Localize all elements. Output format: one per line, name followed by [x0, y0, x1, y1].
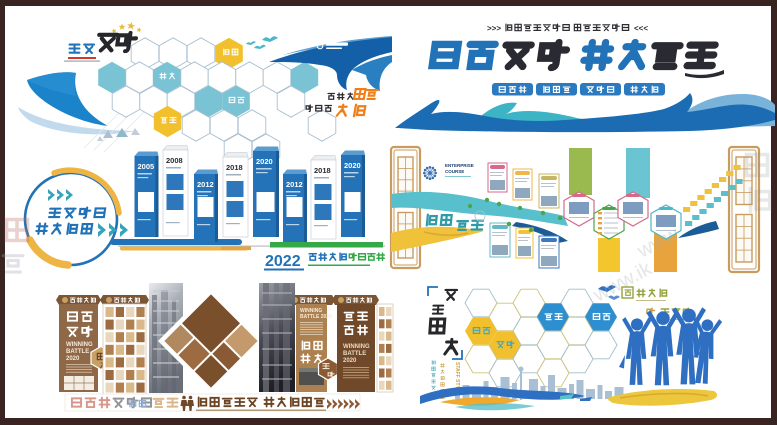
svg-text:BATTLE: BATTLE — [343, 351, 366, 357]
svg-text:WINNING: WINNING — [343, 344, 370, 350]
svg-text:2022: 2022 — [265, 253, 301, 270]
svg-text:>>>: >>> — [487, 24, 501, 33]
svg-text:2020: 2020 — [344, 161, 361, 170]
svg-text:2012: 2012 — [286, 180, 303, 189]
svg-text:2018: 2018 — [314, 166, 331, 175]
svg-text:2005: 2005 — [138, 162, 155, 171]
svg-text:BATTLE: BATTLE — [66, 349, 89, 355]
svg-text:2020: 2020 — [343, 358, 357, 364]
svg-text:COURSE: COURSE — [445, 169, 464, 174]
svg-text:WINNING: WINNING — [66, 342, 93, 348]
svg-text:ENTERPRISE: ENTERPRISE — [445, 163, 474, 168]
svg-text:2008: 2008 — [166, 156, 183, 165]
svg-text:<<<: <<< — [634, 24, 648, 33]
svg-text:2020: 2020 — [256, 157, 273, 166]
svg-text:2018: 2018 — [226, 163, 243, 172]
svg-text:2020: 2020 — [66, 356, 80, 362]
svg-text:BATTLE 2020: BATTLE 2020 — [300, 314, 332, 320]
svg-text:2012: 2012 — [197, 180, 214, 189]
